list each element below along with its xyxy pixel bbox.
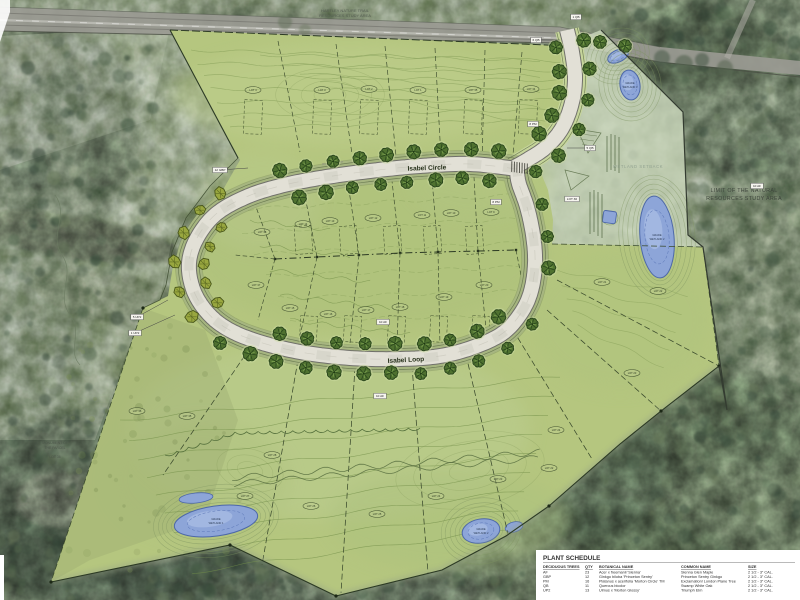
svg-text:LOT 19: LOT 19 — [440, 295, 449, 299]
svg-text:LOT 22: LOT 22 — [654, 289, 663, 293]
svg-text:WETLAND SETBACK: WETLAND SETBACK — [613, 164, 663, 169]
svg-text:SIZE: SIZE — [748, 565, 757, 569]
svg-text:Swamp White Oak: Swamp White Oak — [681, 584, 713, 588]
svg-text:10 AF: 10 AF — [376, 394, 384, 398]
svg-text:8 PM: 8 PM — [492, 200, 500, 204]
svg-text:LOT 20: LOT 20 — [480, 283, 489, 287]
svg-text:23: 23 — [585, 571, 589, 575]
svg-text:PM: PM — [543, 580, 549, 584]
svg-text:DECIDUOUS TREES: DECIDUOUS TREES — [543, 565, 580, 569]
svg-text:Platanus x acerifolia 'Morton: Platanus x acerifolia 'Morton Circle' TM — [599, 580, 665, 584]
svg-text:LIMIT OF THE NATURAL: LIMIT OF THE NATURAL — [710, 188, 777, 194]
svg-text:LOT 15: LOT 15 — [286, 306, 295, 310]
svg-text:Isabel Circle: Isabel Circle — [407, 164, 446, 172]
svg-text:GRADE: GRADE — [625, 81, 634, 85]
svg-text:Acer x freemanii 'Sienna': Acer x freemanii 'Sienna' — [599, 571, 641, 575]
svg-text:12 GBP: 12 GBP — [215, 168, 226, 172]
svg-text:1 QB: 1 QB — [572, 15, 579, 19]
svg-text:GBP: GBP — [543, 575, 551, 579]
svg-text:LOT 4: LOT 4 — [249, 88, 257, 92]
svg-text:LOT 3: LOT 3 — [318, 88, 326, 92]
svg-text:LOT 34: LOT 34 — [527, 87, 536, 91]
svg-text:LOT 25: LOT 25 — [373, 512, 382, 516]
svg-text:2 1/2 - 3" CAL.: 2 1/2 - 3" CAL. — [748, 589, 773, 593]
svg-text:THE PARCEL: THE PARCEL — [44, 446, 65, 450]
svg-text:Ulmus x 'Morton Glossy': Ulmus x 'Morton Glossy' — [599, 589, 640, 593]
svg-text:Sienna Glen Maple: Sienna Glen Maple — [681, 571, 713, 575]
svg-text:LOT 22: LOT 22 — [545, 466, 554, 470]
svg-text:LOT 23: LOT 23 — [628, 371, 637, 375]
svg-text:LOT 16: LOT 16 — [324, 312, 333, 316]
svg-text:LOT 23: LOT 23 — [494, 477, 503, 481]
svg-text:GRADE: GRADE — [652, 233, 661, 237]
svg-text:WETLAND 1: WETLAND 1 — [209, 521, 224, 525]
svg-text:LOT 38: LOT 38 — [258, 230, 267, 234]
svg-text:LOT 12: LOT 12 — [369, 216, 378, 220]
svg-text:LOT 37: LOT 37 — [252, 283, 261, 287]
svg-text:LOT 28: LOT 28 — [268, 453, 277, 457]
svg-text:RESOURCES STUDY AREA: RESOURCES STUDY AREA — [706, 196, 782, 202]
svg-text:Exclamation! London Plane Tree: Exclamation! London Plane Tree — [681, 580, 736, 584]
svg-text:5 UP2: 5 UP2 — [133, 315, 142, 319]
svg-text:LOT 21: LOT 21 — [598, 280, 607, 284]
svg-text:LOT 27: LOT 27 — [241, 494, 250, 498]
svg-text:10 AF: 10 AF — [379, 320, 387, 324]
svg-text:LOT 36: LOT 36 — [133, 409, 142, 413]
svg-text:LOT 30: LOT 30 — [567, 197, 578, 201]
svg-text:LOT 1: LOT 1 — [414, 88, 422, 92]
svg-text:Triumph Elm: Triumph Elm — [681, 589, 702, 593]
svg-text:11: 11 — [585, 584, 589, 588]
svg-text:Ginkgo biloba 'Princeton Sentr: Ginkgo biloba 'Princeton Sentry' — [599, 575, 653, 579]
svg-text:Princeton Sentry Ginkgo: Princeton Sentry Ginkgo — [681, 575, 722, 579]
svg-text:16: 16 — [585, 580, 589, 584]
svg-text:QB: QB — [543, 584, 549, 588]
svg-text:LOT 10: LOT 10 — [447, 211, 456, 215]
svg-text:UP2: UP2 — [543, 589, 550, 593]
svg-text:1 UP2: 1 UP2 — [131, 331, 140, 335]
svg-text:2 1/2 - 3" CAL.: 2 1/2 - 3" CAL. — [748, 575, 773, 579]
svg-text:MONUMENT OF: MONUMENT OF — [42, 441, 68, 445]
svg-text:WETLAND 2: WETLAND 2 — [650, 237, 665, 241]
svg-text:13: 13 — [585, 589, 589, 593]
svg-text:LOT 18: LOT 18 — [396, 305, 405, 309]
svg-text:LOT 14: LOT 14 — [299, 222, 308, 226]
svg-text:LOT 36: LOT 36 — [49, 455, 60, 459]
svg-text:GRADE: GRADE — [476, 527, 485, 531]
svg-text:RESOURCES STUDY AREA: RESOURCES STUDY AREA — [319, 13, 371, 18]
svg-text:QTY: QTY — [585, 565, 593, 569]
svg-text:AF: AF — [543, 571, 549, 575]
svg-text:WETLAND 3: WETLAND 3 — [623, 85, 638, 89]
svg-text:LOT 35: LOT 35 — [469, 88, 478, 92]
svg-text:Quercus bicolor: Quercus bicolor — [599, 584, 626, 588]
svg-text:5 QB: 5 QB — [586, 146, 593, 150]
svg-text:LOT 24: LOT 24 — [552, 428, 561, 432]
svg-text:LOT 9: LOT 9 — [487, 210, 495, 214]
svg-text:BOTANICAL NAME: BOTANICAL NAME — [599, 565, 634, 569]
svg-text:12: 12 — [585, 575, 589, 579]
svg-text:LOT 17: LOT 17 — [362, 308, 371, 312]
svg-text:LOT 24: LOT 24 — [432, 494, 441, 498]
svg-text:PLANT SCHEDULE: PLANT SCHEDULE — [543, 555, 600, 562]
svg-text:2 1/2 - 3" CAL.: 2 1/2 - 3" CAL. — [748, 571, 773, 575]
svg-text:10 AF: 10 AF — [753, 184, 761, 188]
svg-text:2 1/2 - 3" CAL.: 2 1/2 - 3" CAL. — [748, 580, 773, 584]
svg-text:LOT 26: LOT 26 — [307, 504, 316, 508]
svg-text:LOT 13: LOT 13 — [326, 219, 335, 223]
svg-text:LOT 11: LOT 11 — [418, 213, 427, 217]
svg-text:LOT 35: LOT 35 — [183, 414, 192, 418]
svg-text:8 PM: 8 PM — [529, 122, 537, 126]
svg-text:COMMON NAME: COMMON NAME — [681, 565, 711, 569]
svg-text:WETLAND 2: WETLAND 2 — [474, 531, 489, 535]
svg-text:2 1/2 - 3" CAL.: 2 1/2 - 3" CAL. — [748, 584, 773, 588]
svg-text:GRADE: GRADE — [211, 517, 220, 521]
svg-text:LOT 2: LOT 2 — [365, 87, 373, 91]
svg-text:6 QB: 6 QB — [532, 38, 539, 42]
